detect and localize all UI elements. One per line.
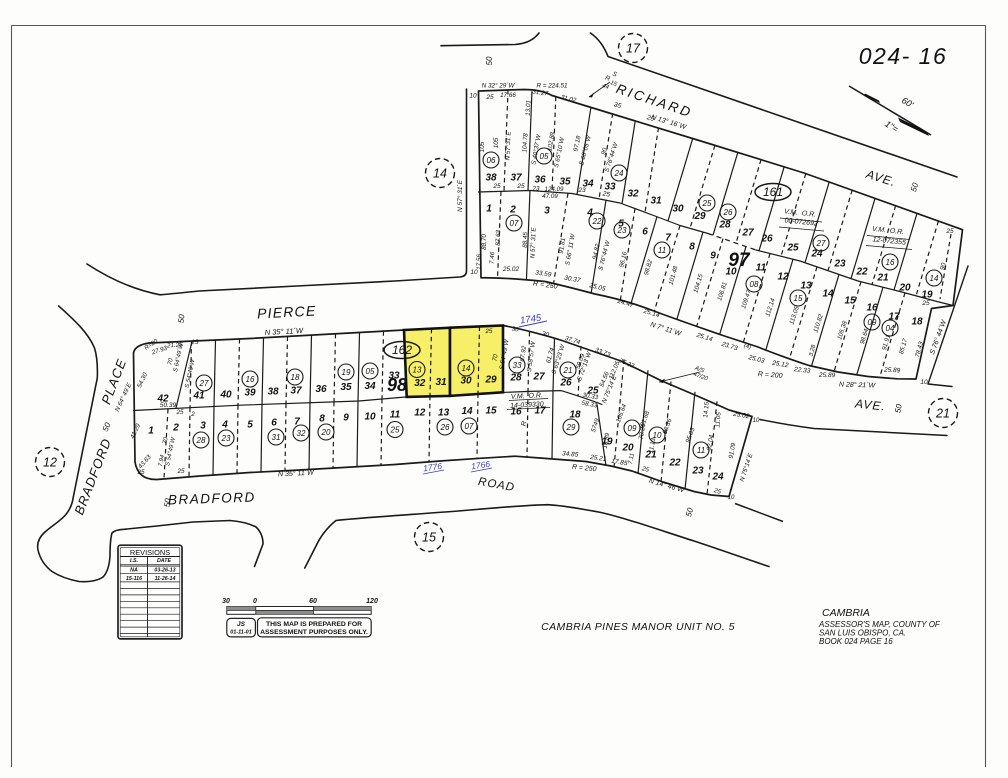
svg-text:26: 26 [723,208,733,217]
svg-text:PIERCE: PIERCE [257,302,317,321]
svg-text:23: 23 [617,226,627,235]
svg-text:25: 25 [786,243,799,254]
svg-text:17.66: 17.66 [500,92,516,99]
svg-text:25: 25 [516,183,525,190]
svg-text:124.09: 124.09 [545,186,564,193]
svg-text:38: 38 [267,387,279,398]
svg-text:32: 32 [627,189,639,200]
svg-text:27: 27 [816,239,826,248]
svg-text:DATE: DATE [157,558,171,564]
svg-text:38: 38 [485,173,497,184]
svg-text:25: 25 [190,339,199,346]
svg-text:23: 23 [577,187,586,194]
svg-text:27: 27 [741,228,754,239]
svg-text:11-26-14: 11-26-14 [155,576,176,582]
svg-text:36: 36 [534,175,546,186]
svg-text:32: 32 [297,429,306,438]
svg-text:30: 30 [672,204,684,215]
svg-text:14: 14 [433,166,447,180]
svg-text:12: 12 [43,455,57,469]
svg-text:23: 23 [691,466,704,477]
svg-text:23: 23 [532,186,540,193]
svg-text:88.45: 88.45 [522,231,530,247]
svg-text:4: 4 [221,420,228,431]
svg-text:25.89: 25.89 [883,367,901,375]
svg-text:14: 14 [461,406,473,417]
svg-text:11: 11 [390,410,401,421]
svg-text:7.46: 7.46 [489,251,496,264]
svg-text:BRADFORD: BRADFORD [168,489,256,507]
svg-text:ASSESSMENT PURPOSES ONLY.: ASSESSMENT PURPOSES ONLY. [260,629,368,636]
svg-text:162: 162 [392,343,412,357]
svg-text:50: 50 [485,56,494,65]
svg-text:25: 25 [945,228,954,235]
svg-text:15: 15 [794,294,803,303]
svg-text:104.78: 104.78 [522,133,530,153]
svg-text:THIS MAP IS PREPARED FOR: THIS MAP IS PREPARED FOR [266,621,362,628]
svg-text:25: 25 [492,183,501,190]
svg-text:JS: JS [237,621,246,628]
svg-text:05: 05 [366,367,375,376]
svg-text:28: 28 [509,373,522,384]
svg-text:41: 41 [192,391,205,402]
svg-text:10: 10 [469,93,477,100]
svg-text:60: 60 [309,598,317,605]
svg-text:2: 2 [190,411,195,418]
svg-text:25.89: 25.89 [818,372,836,380]
svg-text:13: 13 [413,365,422,374]
svg-text:16: 16 [246,375,255,384]
svg-text:30: 30 [222,598,230,605]
svg-text:7: 7 [665,233,671,244]
svg-text:23: 23 [833,259,846,270]
svg-text:09: 09 [868,318,877,327]
svg-text:1: 1 [486,204,492,215]
svg-text:14.15: 14.15 [702,401,710,418]
svg-text:09: 09 [628,424,637,433]
svg-text:47.09: 47.09 [542,193,558,200]
svg-text:37: 37 [290,386,302,397]
svg-text:25: 25 [702,199,712,208]
svg-text:33: 33 [388,371,400,382]
svg-text:07: 07 [510,219,519,228]
svg-text:29: 29 [566,423,576,432]
svg-text:22: 22 [592,217,602,226]
svg-text:11: 11 [658,246,666,255]
svg-text:16: 16 [886,258,895,267]
svg-text:25: 25 [484,328,493,335]
svg-text:15-116: 15-116 [126,576,142,582]
svg-text:31: 31 [650,196,662,207]
svg-text:25: 25 [601,190,611,198]
svg-text:37: 37 [510,173,522,184]
svg-text:N 57° 31´E: N 57° 31´E [456,179,464,212]
svg-text:26: 26 [559,378,572,389]
svg-text:19: 19 [921,290,933,301]
svg-text:21: 21 [563,366,573,375]
svg-text:105: 105 [479,141,486,152]
svg-text:07: 07 [465,422,474,431]
svg-text:31: 31 [272,433,281,442]
svg-text:19: 19 [342,368,351,377]
svg-text:24: 24 [711,472,724,483]
svg-text:3: 3 [200,421,206,432]
svg-text:32: 32 [414,378,426,389]
svg-text:10: 10 [725,267,737,278]
svg-text:20: 20 [321,428,331,437]
svg-text:2: 2 [172,423,179,434]
svg-text:REVISIONS: REVISIONS [130,548,170,557]
svg-text:25: 25 [390,425,400,434]
svg-text:27: 27 [199,379,209,388]
svg-text:50: 50 [177,313,187,323]
svg-text:6: 6 [271,418,277,429]
svg-text:14: 14 [822,289,834,300]
svg-text:18: 18 [911,317,923,328]
svg-text:15: 15 [422,530,436,544]
svg-text:CAMBRIA PINES MANOR UNIT N: CAMBRIA PINES MANOR UNIT NO. 5 [541,621,735,633]
svg-text:87.63: 87.63 [495,229,503,245]
svg-text:161: 161 [763,185,783,199]
svg-text:22: 22 [855,267,868,278]
svg-text:15: 15 [485,406,497,417]
svg-text:17: 17 [534,406,546,417]
svg-text:5: 5 [247,420,253,431]
svg-text:N 28° 21´W: N 28° 21´W [839,380,877,389]
svg-text:08: 08 [750,280,759,289]
svg-text:06: 06 [487,156,496,165]
svg-text:9: 9 [343,413,349,424]
svg-text:024- 16: 024- 16 [859,43,948,69]
svg-text:31: 31 [435,377,447,388]
svg-text:03-26-13: 03-26-13 [154,568,175,574]
svg-text:10: 10 [920,379,928,386]
svg-text:34.85: 34.85 [562,450,579,458]
svg-text:N 32° 29´W: N 32° 29´W [482,82,516,90]
svg-text:25: 25 [485,94,494,101]
svg-text:2: 2 [509,205,516,216]
svg-text:24: 24 [614,169,624,178]
svg-text:NA: NA [130,568,138,574]
svg-text:R = 224.51: R = 224.51 [537,83,568,90]
svg-text:13.01: 13.01 [525,100,533,116]
svg-text:3: 3 [544,206,550,217]
svg-text:8: 8 [319,414,325,425]
svg-text:9: 9 [710,251,716,262]
svg-text:25.02: 25.02 [502,266,520,273]
svg-text:11.05: 11.05 [714,411,722,427]
svg-text:40: 40 [219,390,232,401]
svg-text:88.70: 88.70 [481,234,488,250]
svg-text:01-11-01: 01-11-01 [230,630,252,636]
svg-text:6: 6 [642,227,648,238]
svg-text:12: 12 [777,272,789,283]
svg-text:39: 39 [244,388,256,399]
svg-text:20: 20 [621,443,634,454]
svg-text:105: 105 [493,137,500,148]
svg-text:50: 50 [163,497,173,507]
svg-text:23: 23 [221,434,231,443]
svg-text:22: 22 [668,458,681,469]
svg-text:36: 36 [315,384,327,395]
svg-text:21: 21 [935,406,950,420]
svg-text:21: 21 [876,273,889,284]
svg-text:29: 29 [693,211,706,222]
svg-text:15: 15 [844,296,856,307]
svg-text:25: 25 [136,469,145,476]
svg-text:34: 34 [364,381,376,392]
svg-text:35: 35 [340,382,352,393]
svg-text:10: 10 [728,495,735,501]
svg-text:17: 17 [626,41,641,55]
svg-text:8: 8 [689,242,695,253]
svg-text:N 57°31´E: N 57°31´E [503,130,512,160]
svg-text:14: 14 [930,274,939,283]
svg-text:BOOK 024 PAGE 16: BOOK 024 PAGE 16 [819,637,893,646]
svg-text:26: 26 [760,234,773,245]
svg-text:27: 27 [532,372,545,383]
svg-text:120: 120 [366,598,378,605]
svg-text:I.S.: I.S. [130,558,138,564]
svg-text:26: 26 [440,423,450,432]
svg-text:14: 14 [462,364,471,373]
svg-text:25: 25 [176,468,185,475]
svg-text:10: 10 [364,412,376,423]
svg-text:28: 28 [196,436,206,445]
svg-text:17.56: 17.56 [476,254,483,270]
svg-text:20: 20 [898,283,911,294]
svg-text:16: 16 [510,407,522,418]
svg-text:11: 11 [756,263,767,274]
svg-text:50.39: 50.39 [160,402,177,409]
svg-text:18: 18 [291,373,300,382]
svg-text:13: 13 [438,408,450,419]
svg-text:25: 25 [175,409,184,416]
svg-text:1: 1 [148,426,154,437]
svg-text:12: 12 [414,408,426,419]
svg-text:0: 0 [253,598,257,605]
svg-text:11: 11 [697,446,705,455]
svg-text:25: 25 [921,300,930,307]
svg-text:13: 13 [800,281,812,292]
svg-text:30: 30 [460,376,472,387]
svg-text:05: 05 [540,152,549,161]
svg-text:CAMBRIA: CAMBRIA [822,607,870,619]
svg-text:16: 16 [866,303,878,314]
svg-text:10: 10 [753,418,760,424]
svg-text:29: 29 [484,375,497,386]
svg-text:04: 04 [886,324,895,333]
svg-text:28: 28 [718,220,731,231]
svg-text:N 57° 31´E: N 57° 31´E [528,227,537,259]
